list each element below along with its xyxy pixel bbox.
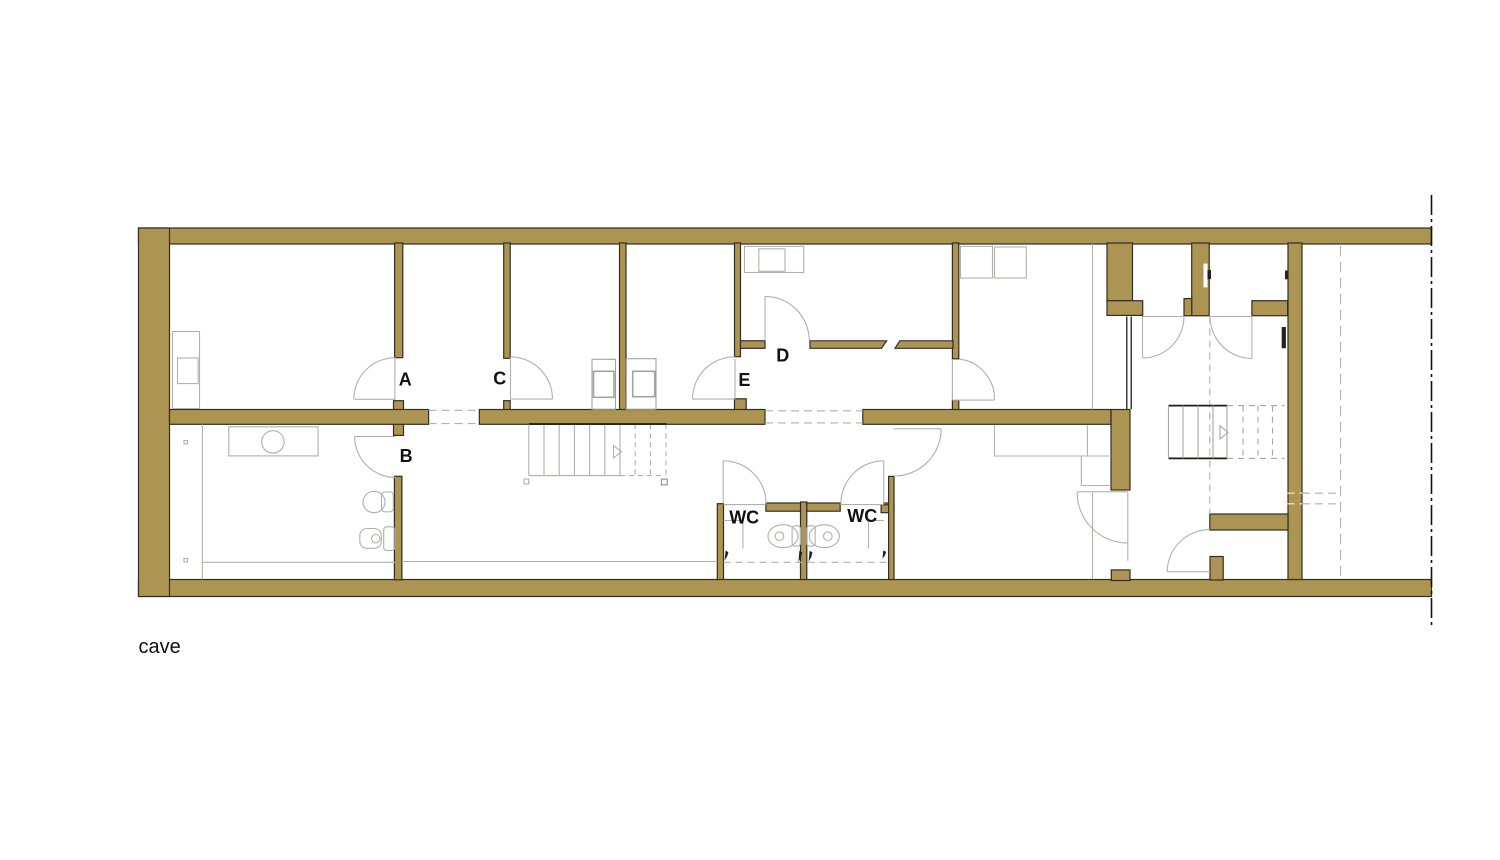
svg-text:D: D xyxy=(776,346,789,366)
svg-text:C: C xyxy=(493,369,506,389)
svg-text:cave: cave xyxy=(139,636,181,658)
svg-text:WC: WC xyxy=(847,506,877,526)
svg-text:E: E xyxy=(738,370,750,390)
svg-text:B: B xyxy=(400,446,413,466)
svg-text:WC: WC xyxy=(729,507,759,527)
svg-text:A: A xyxy=(399,369,412,389)
